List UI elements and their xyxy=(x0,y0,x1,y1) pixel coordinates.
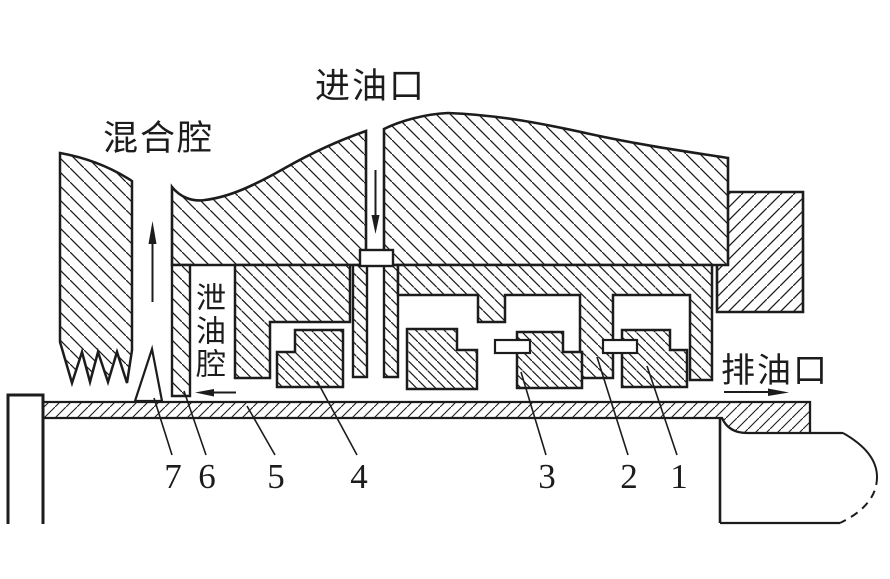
housing-right-section xyxy=(384,113,728,265)
part-number-2: 2 xyxy=(611,457,647,497)
drain-left-arrow xyxy=(195,389,236,397)
end-cover-block xyxy=(717,192,803,312)
floating-ring-oil-seal-diagram: 进油口 混合腔 泄油腔 排油口 7 6 5 4 3 2 1 xyxy=(0,0,890,579)
inlet-down-arrow xyxy=(372,170,380,234)
inlet-label: 进油口 xyxy=(315,58,426,109)
anti-rotation-pin-right xyxy=(603,340,637,353)
inlet-tube-right-wall xyxy=(384,265,398,377)
part-number-6: 6 xyxy=(189,457,225,497)
leader-6 xyxy=(184,391,206,455)
impeller-back-block xyxy=(60,153,132,383)
shaft-shoulder-bar xyxy=(8,395,43,524)
seal-ring-1 xyxy=(622,330,687,387)
mixing-chamber-up-arrow xyxy=(149,221,157,302)
housing-left-wall xyxy=(172,265,190,396)
anti-rotation-pin-left xyxy=(495,340,530,353)
inlet-tube-collar xyxy=(360,250,393,266)
drain-chamber-label: 泄油腔 xyxy=(192,282,222,381)
mixing-chamber-label: 混合腔 xyxy=(103,110,214,161)
shaft-end xyxy=(720,419,877,523)
part-number-1: 1 xyxy=(661,457,697,497)
seal-ring-4 xyxy=(277,330,343,387)
shaft-sleeve xyxy=(43,402,810,433)
diagram-linework xyxy=(0,0,890,579)
part-number-5: 5 xyxy=(258,457,294,497)
outlet-label: 排油口 xyxy=(721,343,829,392)
inlet-tube-left-wall xyxy=(353,265,367,377)
part-number-7: 7 xyxy=(155,457,191,497)
part-number-4: 4 xyxy=(341,457,377,497)
slinger-spike xyxy=(135,349,162,401)
seal-ring-3 xyxy=(407,329,477,389)
part-number-3: 3 xyxy=(529,457,565,497)
